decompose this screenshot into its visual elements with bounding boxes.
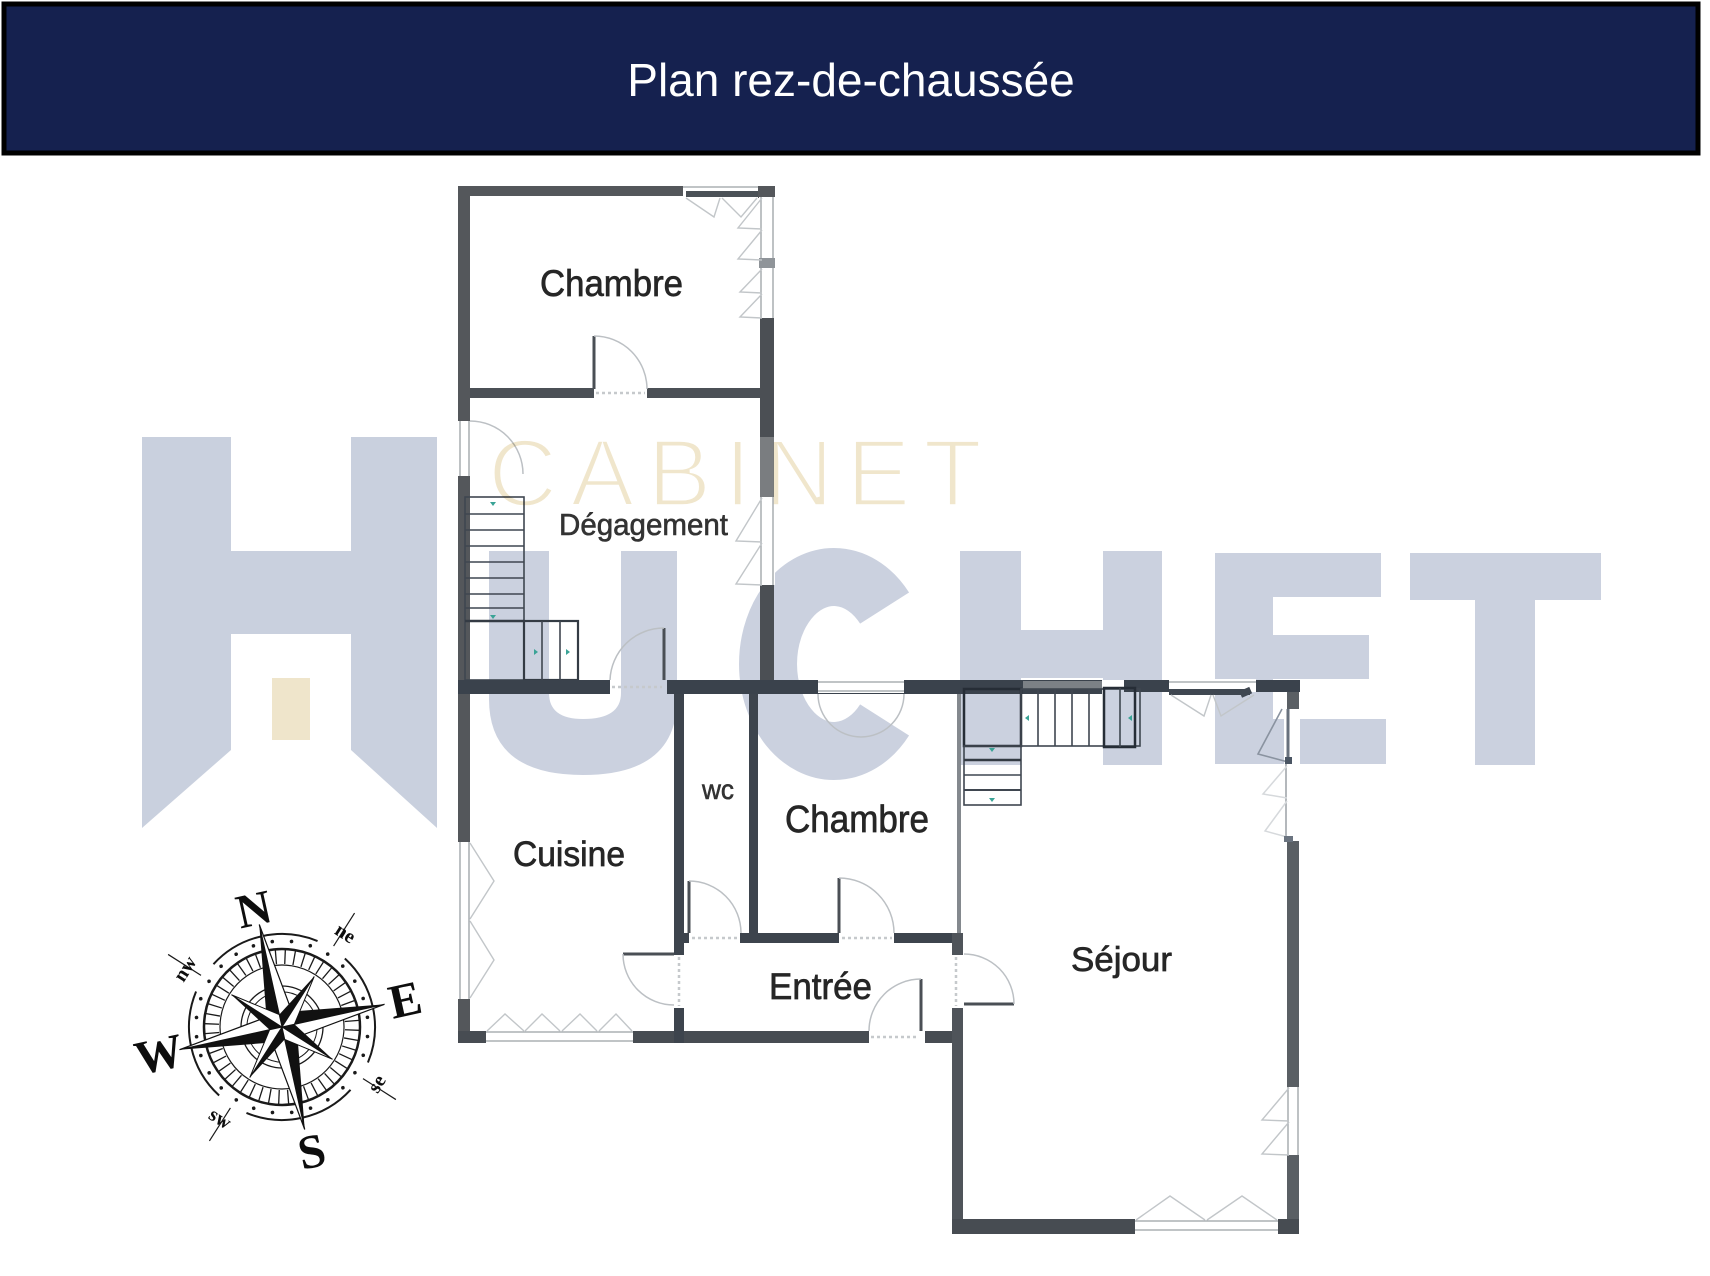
svg-text:W: W bbox=[130, 1024, 188, 1086]
svg-text:E: E bbox=[384, 971, 427, 1030]
svg-text:Entrée: Entrée bbox=[769, 966, 872, 1007]
svg-text:N: N bbox=[231, 880, 277, 939]
svg-text:sw: sw bbox=[205, 1104, 236, 1135]
svg-text:nw: nw bbox=[169, 952, 202, 986]
svg-text:Cuisine: Cuisine bbox=[513, 835, 625, 874]
svg-text:S: S bbox=[293, 1123, 331, 1181]
svg-text:Séjour: Séjour bbox=[1071, 941, 1172, 979]
svg-text:wc: wc bbox=[701, 774, 734, 805]
svg-text:Chambre: Chambre bbox=[540, 263, 683, 304]
svg-text:Plan rez-de-chaussée: Plan rez-de-chaussée bbox=[627, 54, 1074, 106]
svg-text:Dégagement: Dégagement bbox=[559, 507, 728, 542]
svg-text:Chambre: Chambre bbox=[785, 799, 929, 841]
